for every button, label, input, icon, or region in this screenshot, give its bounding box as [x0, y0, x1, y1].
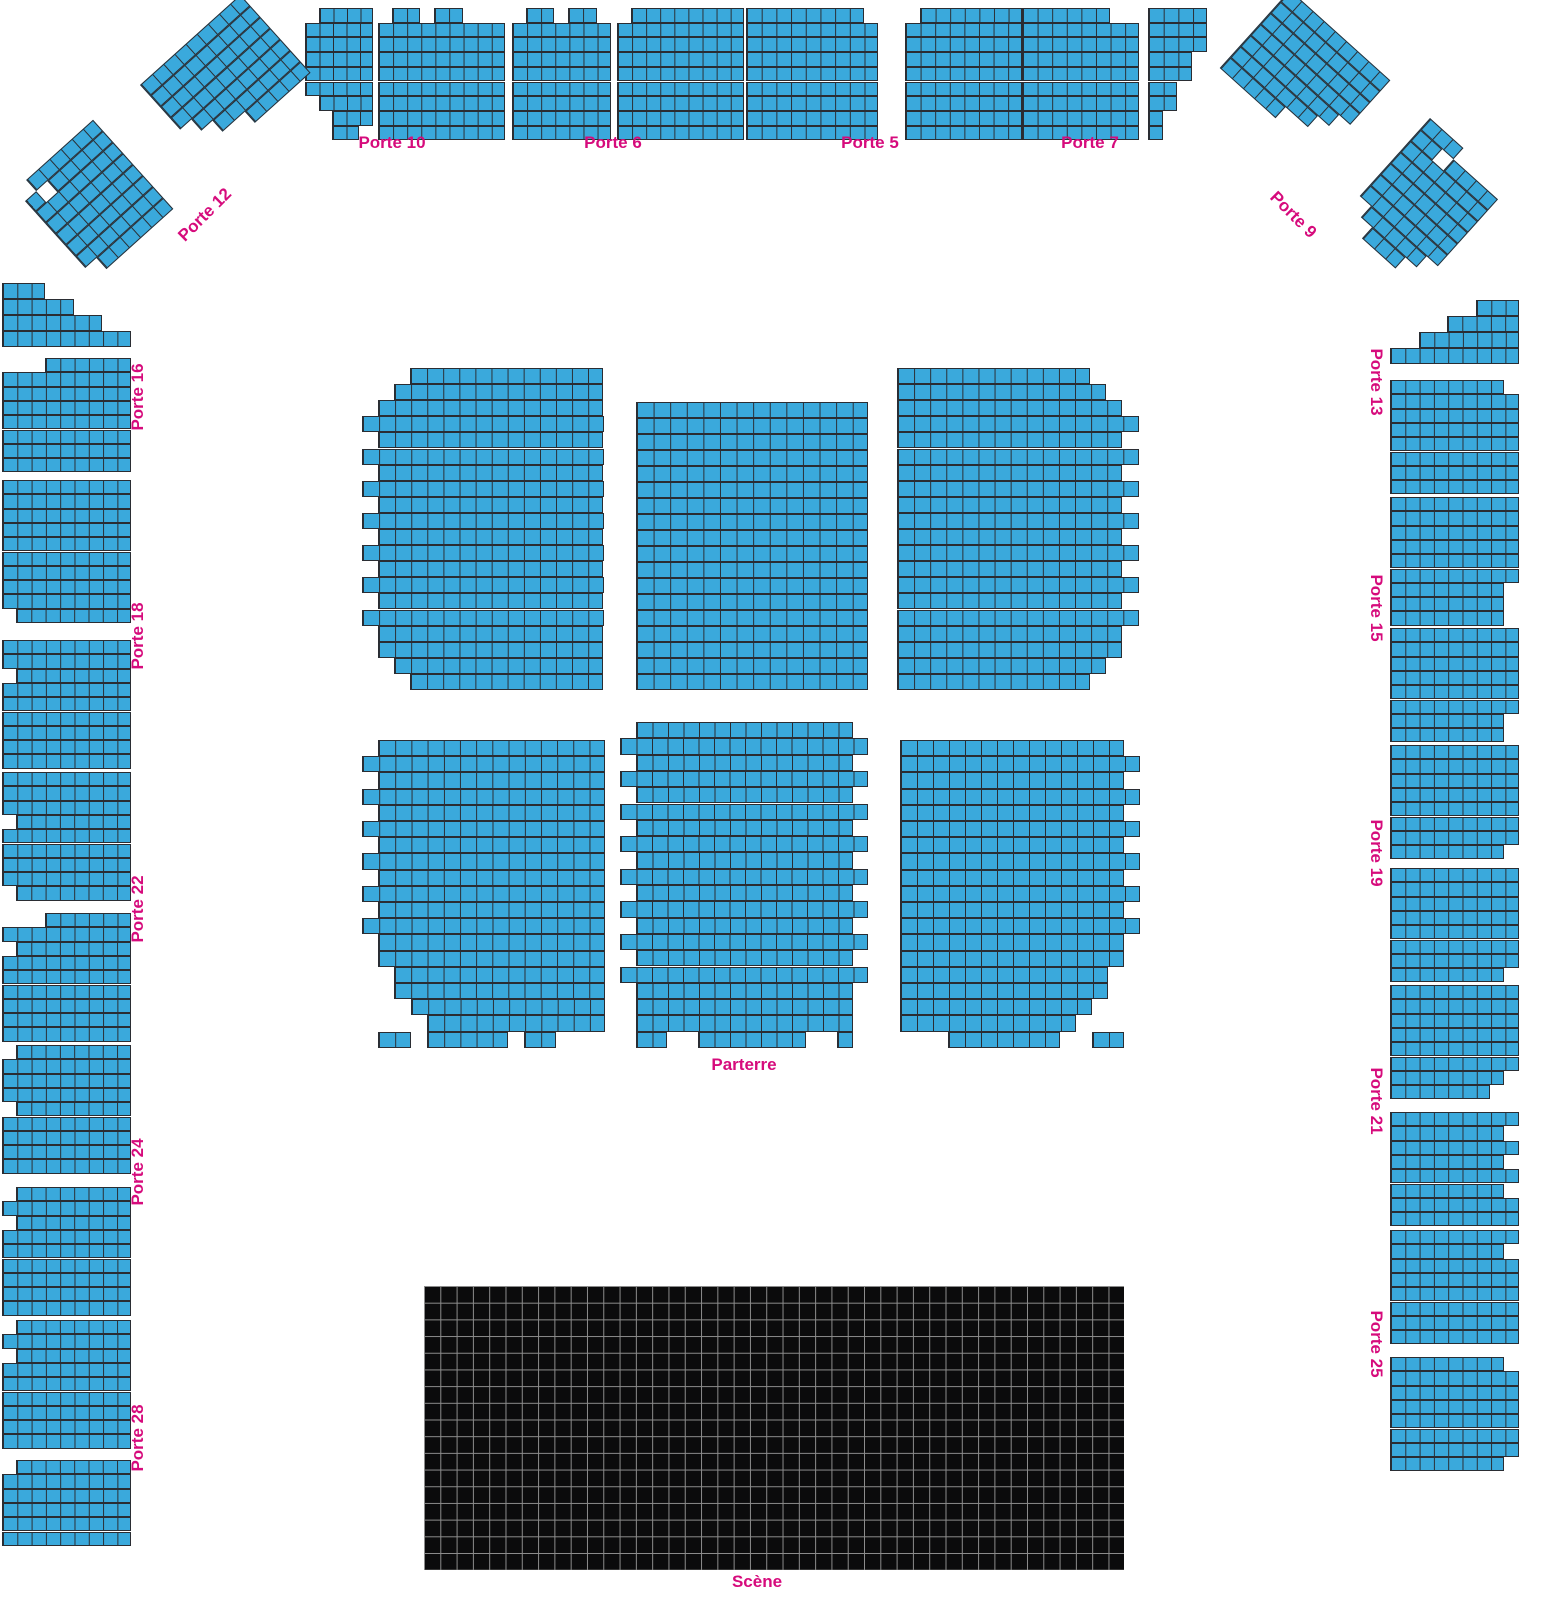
seat-row[interactable]	[362, 513, 604, 529]
seat-row[interactable]	[900, 789, 1140, 805]
seat-row[interactable]	[1390, 1198, 1519, 1212]
seat-row[interactable]	[1390, 1071, 1504, 1085]
seat-row[interactable]	[524, 1032, 556, 1048]
seat-row[interactable]	[2, 283, 45, 299]
seat-row[interactable]	[636, 999, 853, 1015]
seat-row[interactable]	[1390, 642, 1519, 656]
seat-row[interactable]	[1390, 774, 1519, 788]
seat-row[interactable]	[2, 726, 131, 740]
seat-row[interactable]	[2, 1489, 131, 1503]
seat-row[interactable]	[905, 126, 1022, 141]
seat-row[interactable]	[620, 771, 868, 787]
seat-row[interactable]	[948, 1032, 1060, 1048]
seat-row[interactable]	[512, 82, 611, 97]
seat-row[interactable]	[2, 1301, 131, 1315]
seat-row[interactable]	[378, 837, 605, 853]
seat-row[interactable]	[1390, 1287, 1519, 1301]
seat-row[interactable]	[2, 1230, 131, 1244]
seat-row[interactable]	[636, 983, 853, 999]
seat-row[interactable]	[1390, 1212, 1519, 1226]
seat-row[interactable]	[2, 844, 131, 858]
seat-row[interactable]	[897, 416, 1139, 432]
seat-row[interactable]	[636, 546, 868, 562]
seat-row[interactable]	[620, 804, 868, 820]
seat-row[interactable]	[2, 1059, 131, 1073]
seat-row[interactable]	[1390, 911, 1519, 925]
seat-row[interactable]	[2, 415, 131, 429]
seat-row[interactable]	[1390, 1155, 1504, 1169]
seat-row[interactable]	[305, 52, 373, 67]
seat-row[interactable]	[1390, 925, 1519, 939]
seat-row[interactable]	[1148, 67, 1192, 82]
seat-row[interactable]	[636, 642, 868, 658]
seat-row[interactable]	[2, 1517, 131, 1531]
seat-row[interactable]	[1390, 380, 1504, 394]
seat-row[interactable]	[392, 8, 420, 23]
seat-row[interactable]	[2, 299, 74, 315]
seat-row[interactable]	[746, 52, 878, 67]
seat-row[interactable]	[905, 96, 1022, 111]
seat-row[interactable]	[897, 642, 1122, 658]
seat-row[interactable]	[900, 886, 1140, 902]
seat-row[interactable]	[427, 1015, 605, 1031]
seat-row[interactable]	[897, 384, 1106, 400]
seat-row[interactable]	[526, 8, 554, 23]
seat-row[interactable]	[1390, 802, 1519, 816]
seat-row[interactable]	[636, 885, 853, 901]
seat-row[interactable]	[636, 787, 853, 803]
seat-row[interactable]	[512, 67, 611, 82]
seat-row[interactable]	[1390, 1230, 1519, 1244]
seat-row[interactable]	[1022, 23, 1139, 38]
seat-row[interactable]	[362, 449, 604, 465]
seat-row[interactable]	[362, 886, 605, 902]
seat-row[interactable]	[900, 902, 1124, 918]
seat-row[interactable]	[362, 918, 605, 934]
seat-row[interactable]	[378, 642, 603, 658]
seat-row[interactable]	[1390, 1316, 1519, 1330]
seat-row[interactable]	[1390, 423, 1519, 437]
seat-row[interactable]	[2, 640, 131, 654]
seat-row[interactable]	[2, 1503, 131, 1517]
seat-row[interactable]	[636, 918, 853, 934]
seat-row[interactable]	[897, 577, 1139, 593]
seat-row[interactable]	[378, 529, 603, 545]
seat-row[interactable]	[617, 37, 744, 52]
seat-row[interactable]	[378, 400, 603, 416]
seat-row[interactable]	[746, 67, 878, 82]
seat-row[interactable]	[1390, 940, 1519, 954]
seat-row[interactable]	[636, 722, 853, 738]
seat-row[interactable]	[620, 967, 868, 983]
seat-row[interactable]	[837, 1032, 853, 1048]
seat-row[interactable]	[378, 432, 603, 448]
seat-row[interactable]	[16, 1102, 130, 1116]
seat-row[interactable]	[362, 610, 604, 626]
seat-row[interactable]	[2, 1406, 131, 1420]
seat-row[interactable]	[1390, 1112, 1519, 1126]
seat-row[interactable]	[305, 82, 373, 97]
seat-row[interactable]	[620, 738, 868, 754]
seat-row[interactable]	[746, 8, 864, 23]
seat-row[interactable]	[16, 1349, 130, 1363]
seat-row[interactable]	[1390, 1414, 1519, 1428]
seat-row[interactable]	[2, 786, 131, 800]
seat-row[interactable]	[900, 951, 1124, 967]
seat-row[interactable]	[1390, 882, 1519, 896]
seat-row[interactable]	[1022, 37, 1139, 52]
seat-row[interactable]	[746, 82, 878, 97]
seat-row[interactable]	[1092, 1032, 1124, 1048]
seat-row[interactable]	[1022, 82, 1139, 97]
seat-row[interactable]	[636, 950, 853, 966]
seat-row[interactable]	[2, 1088, 131, 1102]
seat-row[interactable]	[378, 67, 505, 82]
seat-row[interactable]	[636, 674, 868, 690]
seat-row[interactable]	[1022, 111, 1139, 126]
seat-row[interactable]	[1390, 999, 1519, 1013]
seat-row[interactable]	[332, 126, 359, 141]
seat-row[interactable]	[1390, 526, 1519, 540]
seat-row[interactable]	[378, 23, 505, 38]
seat-row[interactable]	[2, 444, 131, 458]
seat-row[interactable]	[905, 37, 1022, 52]
seat-row[interactable]	[2, 858, 131, 872]
seat-row[interactable]	[2, 1434, 131, 1448]
seat-row[interactable]	[1419, 332, 1519, 348]
seat-row[interactable]	[920, 8, 1022, 23]
seat-row[interactable]	[512, 52, 611, 67]
seat-row[interactable]	[1148, 23, 1207, 38]
seat-row[interactable]	[1390, 480, 1519, 494]
seat-row[interactable]	[378, 772, 605, 788]
seat-row[interactable]	[1390, 954, 1519, 968]
seat-row[interactable]	[746, 111, 878, 126]
seat-row[interactable]	[2, 1259, 131, 1273]
seat-row[interactable]	[1390, 985, 1519, 999]
seat-row[interactable]	[378, 82, 505, 97]
seat-row[interactable]	[378, 37, 505, 52]
seat-row[interactable]	[1476, 300, 1519, 316]
seat-row[interactable]	[905, 111, 1022, 126]
seat-row[interactable]	[1390, 745, 1519, 759]
seat-row[interactable]	[617, 82, 744, 97]
seat-row[interactable]	[897, 529, 1122, 545]
seat-row[interactable]	[897, 610, 1139, 626]
seat-row[interactable]	[905, 52, 1022, 67]
seat-row[interactable]	[617, 111, 744, 126]
seat-row[interactable]	[1390, 1141, 1519, 1155]
seat-row[interactable]	[1390, 1330, 1519, 1344]
seat-row[interactable]	[1390, 685, 1519, 699]
seat-row[interactable]	[1390, 1028, 1519, 1042]
seat-row[interactable]	[1390, 714, 1504, 728]
seat-row[interactable]	[512, 37, 611, 52]
seat-row[interactable]	[1390, 845, 1504, 859]
seat-row[interactable]	[319, 8, 373, 23]
seat-row[interactable]	[1390, 437, 1519, 451]
seat-row[interactable]	[1390, 511, 1519, 525]
seat-row[interactable]	[512, 23, 611, 38]
seat-row[interactable]	[378, 805, 605, 821]
seat-row[interactable]	[900, 918, 1140, 934]
seat-row[interactable]	[1148, 52, 1192, 67]
seat-row[interactable]	[1390, 657, 1519, 671]
seat-row[interactable]	[1390, 583, 1504, 597]
seat-row[interactable]	[16, 669, 130, 683]
seat-row[interactable]	[16, 1320, 130, 1334]
seat-row[interactable]	[1390, 1371, 1519, 1385]
seat-row[interactable]	[636, 658, 868, 674]
seat-row[interactable]	[617, 67, 744, 82]
seat-row[interactable]	[1390, 1014, 1519, 1028]
seat-row[interactable]	[1148, 111, 1163, 126]
seat-row[interactable]	[434, 8, 462, 23]
seat-row[interactable]	[362, 821, 605, 837]
seat-row[interactable]	[1390, 788, 1519, 802]
seat-row[interactable]	[394, 983, 605, 999]
seat-row[interactable]	[620, 869, 868, 885]
seat-row[interactable]	[16, 1216, 130, 1230]
seat-row[interactable]	[1390, 409, 1519, 423]
seat-row[interactable]	[2, 985, 131, 999]
seat-row[interactable]	[897, 400, 1122, 416]
seat-row[interactable]	[900, 772, 1124, 788]
seat-row[interactable]	[746, 23, 878, 38]
seat-row[interactable]	[897, 432, 1122, 448]
seat-row[interactable]	[897, 513, 1139, 529]
seat-row[interactable]	[900, 934, 1124, 950]
seat-row[interactable]	[378, 951, 605, 967]
seat-row[interactable]	[2, 1287, 131, 1301]
seat-row[interactable]	[1390, 897, 1519, 911]
seat-row[interactable]	[905, 82, 1022, 97]
seat-row[interactable]	[620, 836, 868, 852]
seat-row[interactable]	[378, 593, 603, 609]
seat-row[interactable]	[636, 578, 868, 594]
seat-row[interactable]	[900, 805, 1124, 821]
seat-row[interactable]	[1390, 759, 1519, 773]
seat-row[interactable]	[900, 999, 1092, 1015]
seat-row[interactable]	[905, 23, 1022, 38]
seat-row[interactable]	[1390, 1273, 1519, 1287]
seat-row[interactable]	[2, 1145, 131, 1159]
seat-row[interactable]	[617, 23, 744, 38]
seat-row[interactable]	[897, 658, 1106, 674]
seat-row[interactable]	[636, 482, 868, 498]
seat-row[interactable]	[1390, 1057, 1519, 1071]
seat-row[interactable]	[1390, 554, 1519, 568]
seat-row[interactable]	[636, 594, 868, 610]
seat-row[interactable]	[410, 674, 603, 690]
seat-row[interactable]	[900, 853, 1140, 869]
seat-row[interactable]	[568, 8, 596, 23]
seat-row[interactable]	[16, 1187, 130, 1201]
seat-row[interactable]	[2, 1334, 131, 1348]
seat-row[interactable]	[897, 561, 1122, 577]
seat-row[interactable]	[636, 418, 868, 434]
seat-row[interactable]	[897, 626, 1122, 642]
seat-row[interactable]	[410, 368, 603, 384]
seat-row[interactable]	[636, 450, 868, 466]
seat-row[interactable]	[378, 561, 603, 577]
seat-row[interactable]	[1390, 1042, 1519, 1056]
seat-row[interactable]	[897, 368, 1090, 384]
seat-row[interactable]	[332, 111, 373, 126]
seat-row[interactable]	[2, 1027, 131, 1041]
seat-row[interactable]	[636, 1032, 667, 1048]
seat-row[interactable]	[1390, 728, 1504, 742]
seat-row[interactable]	[2, 1244, 131, 1258]
seat-row[interactable]	[1390, 1443, 1519, 1457]
seat-row[interactable]	[378, 902, 605, 918]
seat-row[interactable]	[2, 401, 131, 415]
seat-row[interactable]	[394, 658, 603, 674]
seat-row[interactable]	[1390, 497, 1519, 511]
seat-row[interactable]	[2, 1131, 131, 1145]
seat-row[interactable]	[2, 1474, 131, 1488]
seat-row[interactable]	[512, 111, 611, 126]
seat-row[interactable]	[2, 580, 131, 594]
seat-row[interactable]	[1022, 52, 1139, 67]
seat-row[interactable]	[2, 927, 131, 941]
seat-row[interactable]	[362, 577, 604, 593]
seat-row[interactable]	[1022, 67, 1139, 82]
seat-row[interactable]	[2, 1013, 131, 1027]
seat-row[interactable]	[746, 96, 878, 111]
seat-row[interactable]	[2, 1532, 131, 1546]
seat-row[interactable]	[1390, 1386, 1519, 1400]
seat-row[interactable]	[305, 37, 373, 52]
seat-row[interactable]	[45, 358, 131, 372]
seat-row[interactable]	[16, 815, 130, 829]
seat-row[interactable]	[2, 970, 131, 984]
seat-row[interactable]	[378, 1032, 410, 1048]
seat-row[interactable]	[2, 594, 131, 608]
seat-row[interactable]	[1390, 700, 1519, 714]
seat-row[interactable]	[897, 545, 1139, 561]
seat-row[interactable]	[900, 983, 1108, 999]
seat-row[interactable]	[16, 1460, 130, 1474]
seat-row[interactable]	[16, 886, 130, 900]
seat-row[interactable]	[636, 466, 868, 482]
seat-row[interactable]	[636, 1015, 853, 1031]
seat-row[interactable]	[378, 497, 603, 513]
seat-row[interactable]	[2, 872, 131, 886]
seat-row[interactable]	[1390, 968, 1504, 982]
seat-row[interactable]	[2, 772, 131, 786]
seat-row[interactable]	[900, 821, 1140, 837]
seat-row[interactable]	[2, 509, 131, 523]
seat-row[interactable]	[2, 458, 131, 472]
seat-row[interactable]	[900, 1015, 1076, 1031]
seat-row[interactable]	[2, 1159, 131, 1173]
seat-row[interactable]	[2, 956, 131, 970]
seat-row[interactable]	[2, 754, 131, 768]
seat-row[interactable]	[1148, 126, 1163, 141]
seat-row[interactable]	[636, 626, 868, 642]
seat-row[interactable]	[620, 934, 868, 950]
seat-row[interactable]	[362, 545, 604, 561]
seat-row[interactable]	[636, 514, 868, 530]
seat-row[interactable]	[2, 523, 131, 537]
seat-row[interactable]	[2, 697, 131, 711]
seat-row[interactable]	[2, 712, 131, 726]
seat-row[interactable]	[378, 934, 605, 950]
seat-row[interactable]	[362, 756, 605, 772]
seat-row[interactable]	[2, 1074, 131, 1088]
seat-row[interactable]	[1390, 1085, 1490, 1099]
seat-row[interactable]	[2, 552, 131, 566]
seat-row[interactable]	[636, 530, 868, 546]
seat-row[interactable]	[378, 111, 505, 126]
seat-row[interactable]	[1447, 316, 1519, 332]
seat-row[interactable]	[636, 610, 868, 626]
seat-row[interactable]	[2, 537, 131, 551]
seat-row[interactable]	[1390, 1259, 1519, 1273]
seat-row[interactable]	[897, 465, 1122, 481]
seat-row[interactable]	[1390, 1429, 1519, 1443]
seat-row[interactable]	[620, 901, 868, 917]
seat-row[interactable]	[1390, 868, 1519, 882]
seat-row[interactable]	[2, 654, 131, 668]
seat-row[interactable]	[636, 562, 868, 578]
seat-row[interactable]	[905, 67, 1022, 82]
seat-row[interactable]	[2, 387, 131, 401]
seat-row[interactable]	[746, 37, 878, 52]
seat-row[interactable]	[1148, 82, 1177, 97]
seat-row[interactable]	[698, 1032, 807, 1048]
seat-row[interactable]	[2, 1201, 131, 1215]
seat-row[interactable]	[427, 1032, 508, 1048]
seat-row[interactable]	[1390, 466, 1519, 480]
seat-row[interactable]	[900, 837, 1124, 853]
seat-row[interactable]	[1148, 8, 1207, 23]
seat-row[interactable]	[512, 96, 611, 111]
seat-row[interactable]	[1390, 569, 1519, 583]
seat-row[interactable]	[378, 465, 603, 481]
seat-row[interactable]	[2, 1117, 131, 1131]
seat-row[interactable]	[16, 609, 130, 623]
seat-row[interactable]	[636, 402, 868, 418]
seat-row[interactable]	[1390, 597, 1504, 611]
seat-row[interactable]	[2, 331, 131, 347]
seat-row[interactable]	[636, 434, 868, 450]
seat-row[interactable]	[411, 999, 605, 1015]
seat-row[interactable]	[2, 829, 131, 843]
seat-row[interactable]	[1390, 628, 1519, 642]
seat-row[interactable]	[16, 942, 130, 956]
seat-row[interactable]	[2, 480, 131, 494]
seat-row[interactable]	[1390, 1126, 1504, 1140]
seat-row[interactable]	[362, 789, 605, 805]
seat-row[interactable]	[362, 853, 605, 869]
seat-row[interactable]	[636, 820, 853, 836]
seat-row[interactable]	[2, 430, 131, 444]
seat-row[interactable]	[1148, 37, 1207, 52]
seat-row[interactable]	[636, 852, 853, 868]
seat-row[interactable]	[362, 416, 604, 432]
seat-row[interactable]	[636, 755, 853, 771]
seat-row[interactable]	[1390, 1400, 1519, 1414]
seat-row[interactable]	[1390, 831, 1519, 845]
seat-row[interactable]	[897, 449, 1139, 465]
seat-row[interactable]	[1390, 611, 1504, 625]
seat-row[interactable]	[378, 96, 505, 111]
seat-row[interactable]	[378, 52, 505, 67]
seat-row[interactable]	[16, 1045, 130, 1059]
seat-row[interactable]	[1390, 452, 1519, 466]
